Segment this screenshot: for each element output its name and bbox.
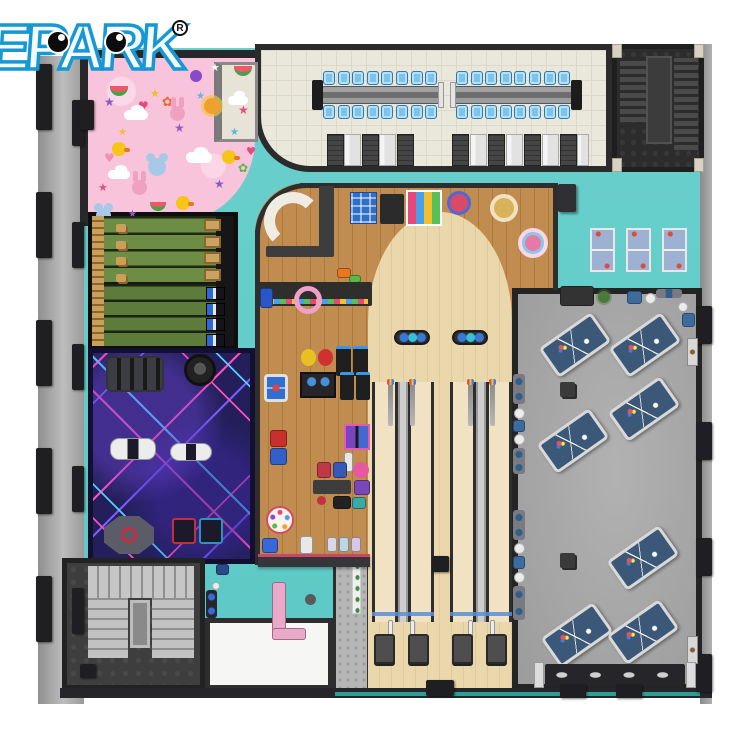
lane-machine (206, 303, 225, 316)
wall-pilaster (560, 684, 586, 698)
cue-rack (687, 338, 698, 366)
dining-table (455, 86, 573, 104)
pinsetter (452, 634, 473, 664)
star-deco: ★ (118, 128, 127, 138)
dining-chair (338, 71, 350, 85)
side-table (514, 543, 525, 554)
storage-cabinet (560, 286, 594, 306)
side-table (514, 408, 525, 419)
reception-desk (266, 246, 334, 257)
dining-chair (485, 105, 497, 119)
pingpong-table (626, 228, 651, 272)
prize-box (333, 496, 351, 509)
stool (317, 496, 326, 505)
vending-cabinet (542, 134, 559, 166)
mini-lanes-lower (104, 284, 216, 346)
wall-pilaster (696, 654, 712, 692)
flower-deco: ✿ (238, 162, 248, 174)
wall-column (612, 44, 622, 58)
star-deco: ★ (230, 128, 239, 138)
wall-pilaster (72, 466, 84, 512)
brand-logo: EPARK (0, 10, 185, 84)
dining-chair (529, 105, 541, 119)
sign-cap (686, 662, 696, 688)
dining-chair (425, 105, 437, 119)
dining-chair (558, 105, 570, 119)
gacha-machine (327, 537, 337, 552)
arcade-cabinet (354, 480, 370, 495)
lane-machine (206, 318, 225, 331)
vending-cabinet (379, 134, 396, 166)
wall-pilaster (36, 192, 52, 258)
bench (513, 510, 525, 540)
table-cap (438, 82, 444, 108)
wall-pilaster (696, 422, 712, 460)
dining-chair (323, 105, 335, 119)
dining-chair (367, 71, 379, 85)
pinsetter (408, 634, 429, 664)
pinsetter (374, 634, 395, 664)
claw-machine (356, 372, 370, 400)
wall-pilaster (72, 344, 84, 390)
dining-chair (411, 71, 423, 85)
wall-pilaster (36, 448, 52, 514)
dining-chair (367, 105, 379, 119)
star-deco: ★ (98, 182, 108, 193)
stool (305, 594, 316, 605)
prize-wheel (353, 462, 369, 478)
claw-machine (340, 372, 354, 400)
cloud-deco (124, 110, 148, 120)
arcade-cabinet (260, 288, 273, 308)
game-table (380, 194, 404, 224)
side-cube (560, 382, 575, 397)
claw-machine (317, 462, 331, 478)
vending-cabinet (362, 134, 379, 166)
sim-pair (300, 372, 336, 398)
vending-cabinet (397, 134, 414, 166)
wall-column (694, 44, 704, 58)
kiddie-ride-red (318, 349, 333, 366)
kiddie-machines (406, 190, 442, 226)
star-deco: ★ (174, 122, 185, 134)
restroom (205, 618, 333, 690)
dining-chair (381, 71, 393, 85)
wall-segment (300, 183, 558, 188)
claw-machine (333, 462, 347, 478)
pingpong-table (590, 228, 615, 272)
bear-deco (148, 158, 166, 176)
photo-counter (272, 628, 306, 640)
stair-treads (674, 58, 698, 150)
dance-machines (344, 424, 370, 450)
prize-counter (258, 554, 370, 567)
wall-pilaster (36, 320, 52, 386)
lane-target (204, 269, 221, 281)
duck-deco (112, 142, 126, 156)
reception-arc (264, 192, 322, 250)
lane-light (372, 612, 434, 616)
star-deco: ★ (214, 178, 225, 190)
plant (598, 291, 610, 303)
logo-eye-icon (104, 30, 128, 54)
arcade-cabinet (262, 538, 278, 553)
lane-machine (206, 287, 225, 300)
sign-cap (534, 662, 544, 688)
dining-chair (352, 71, 364, 85)
vending-cabinet (470, 134, 487, 166)
pinsetter (486, 634, 507, 664)
dining-chair (338, 105, 350, 119)
bench (513, 374, 525, 404)
dining-chair (529, 71, 541, 85)
dining-chair (471, 71, 483, 85)
stair-landing-wall (646, 56, 672, 144)
logo-eye-icon (46, 30, 70, 54)
bench (656, 289, 682, 298)
wall-pilaster (36, 576, 52, 642)
ball-lift (410, 382, 415, 426)
arcade-cabinet (270, 430, 287, 447)
dining-table (322, 86, 440, 104)
star-deco: ★ (238, 104, 249, 116)
bench (206, 590, 217, 618)
bin (216, 564, 229, 575)
bowling-lane-pair (372, 382, 434, 622)
floor-sign (545, 664, 685, 686)
bunny-deco (132, 180, 147, 195)
grape-deco (190, 70, 202, 82)
star-deco: ★ (150, 88, 160, 99)
side-table (514, 572, 525, 583)
battle-screen-red (172, 518, 196, 544)
bowling-lane-pair (450, 382, 512, 622)
duck-deco (222, 150, 236, 164)
divider-block (432, 556, 449, 572)
dining-chair (558, 71, 570, 85)
lounge-chair (627, 291, 642, 304)
vr-360-ride (184, 354, 216, 386)
candy-machine (266, 506, 294, 534)
stair-flight (88, 598, 128, 658)
lounge-chair (682, 313, 695, 327)
vr-racing-sim (170, 443, 212, 461)
pingpong-table (662, 228, 687, 272)
wall-pilaster (616, 684, 642, 698)
prize-counter (313, 480, 351, 494)
dining-chair (323, 71, 335, 85)
vending-cabinet (488, 134, 505, 166)
vending-cabinet (327, 134, 344, 166)
stair-core (130, 600, 150, 648)
dining-chair (514, 71, 526, 85)
wall-column (694, 158, 704, 172)
dining-chair (425, 71, 437, 85)
ball-rack-strip (92, 216, 104, 346)
bench (513, 448, 525, 474)
dining-chair (500, 71, 512, 85)
air-hockey (264, 374, 288, 402)
lane-target (204, 252, 221, 264)
kiddie-ride-yellow (301, 349, 316, 366)
star-deco: ★ (196, 92, 205, 102)
wall-pilaster (696, 538, 712, 576)
bunny-deco (170, 106, 185, 121)
dining-chair (396, 71, 408, 85)
dining-chair (485, 71, 497, 85)
floor-plan: ★★★★★★★★★★★♥♥♥✿✿ EPARK R (0, 0, 750, 750)
star-deco: ★ (210, 62, 220, 73)
ball-return (452, 330, 488, 345)
side-table (212, 582, 220, 590)
wall-pilaster (696, 306, 712, 344)
reception-desk (319, 186, 334, 252)
mini-carousel (447, 191, 471, 215)
dining-chair (396, 105, 408, 119)
stair-landing (88, 566, 194, 598)
duck-deco (176, 196, 190, 210)
dining-chair (381, 105, 393, 119)
dining-chair (544, 105, 556, 119)
stair-treads (620, 58, 646, 122)
lane-machine (206, 334, 225, 347)
dining-chair (352, 105, 364, 119)
dining-chair (514, 105, 526, 119)
dining-chair (411, 105, 423, 119)
wall-pilaster (80, 664, 96, 678)
lounge-chair (513, 556, 525, 569)
cloud-deco (108, 170, 130, 179)
vr-platform (104, 516, 154, 554)
vr-family-ride (106, 356, 164, 392)
registered-trademark-icon: R (172, 20, 188, 36)
kids-table (490, 194, 518, 222)
lane-light (450, 612, 512, 616)
lane-target (204, 219, 221, 231)
divider-block (426, 680, 454, 696)
vending-cabinet (560, 134, 577, 166)
cue-rack (687, 636, 698, 664)
wall-pilaster (72, 222, 84, 268)
toss-bag (116, 241, 126, 249)
ring-mirror (294, 286, 322, 314)
kiosk (558, 184, 576, 212)
stair-flight (152, 598, 194, 658)
table-cap (571, 80, 582, 110)
side-cube (560, 553, 575, 568)
wall-pilaster (72, 588, 84, 634)
planter (352, 560, 361, 614)
arcade-cabinet (300, 536, 313, 554)
gacha-machine (339, 537, 349, 552)
star-deco: ★ (104, 96, 115, 108)
side-table (514, 434, 525, 445)
vending-cabinet (577, 134, 589, 166)
heart-deco: ♥ (246, 146, 256, 157)
vr-racing-sim (110, 438, 156, 460)
lounge-chair (513, 420, 525, 432)
dining-chair (456, 105, 468, 119)
ball-return (394, 330, 430, 345)
kids-table (518, 228, 548, 258)
vending-cabinet (524, 134, 541, 166)
ball-lift (468, 382, 473, 426)
toss-bag (116, 257, 126, 265)
toss-bag (116, 224, 126, 232)
vending-cabinet (506, 134, 523, 166)
vending-cabinet (344, 134, 361, 166)
sun-deco (204, 98, 220, 114)
battle-screen-blue (199, 518, 223, 544)
bottom-accent-stripe (335, 692, 700, 696)
table-cap (450, 82, 456, 108)
gacha-machine (351, 537, 361, 552)
wall-pilaster (80, 100, 94, 130)
lane-target (204, 236, 221, 248)
cloud-deco (228, 96, 248, 105)
wall-segment (255, 230, 260, 565)
ball-lift (490, 382, 495, 426)
arcade-cabinet (352, 497, 366, 509)
vending-cabinet (452, 134, 469, 166)
dining-chair (456, 71, 468, 85)
side-table (678, 302, 688, 312)
dining-chair (544, 71, 556, 85)
dining-chair (471, 105, 483, 119)
dining-chair (500, 105, 512, 119)
cloud-deco (186, 152, 212, 163)
side-table (645, 293, 656, 304)
wall-column (612, 158, 622, 172)
bench (513, 586, 525, 620)
ball-lift (388, 382, 393, 426)
table-cap (312, 80, 323, 110)
kiddie-machines (350, 192, 377, 224)
toss-bag (116, 274, 126, 282)
arcade-cabinet (270, 448, 287, 465)
